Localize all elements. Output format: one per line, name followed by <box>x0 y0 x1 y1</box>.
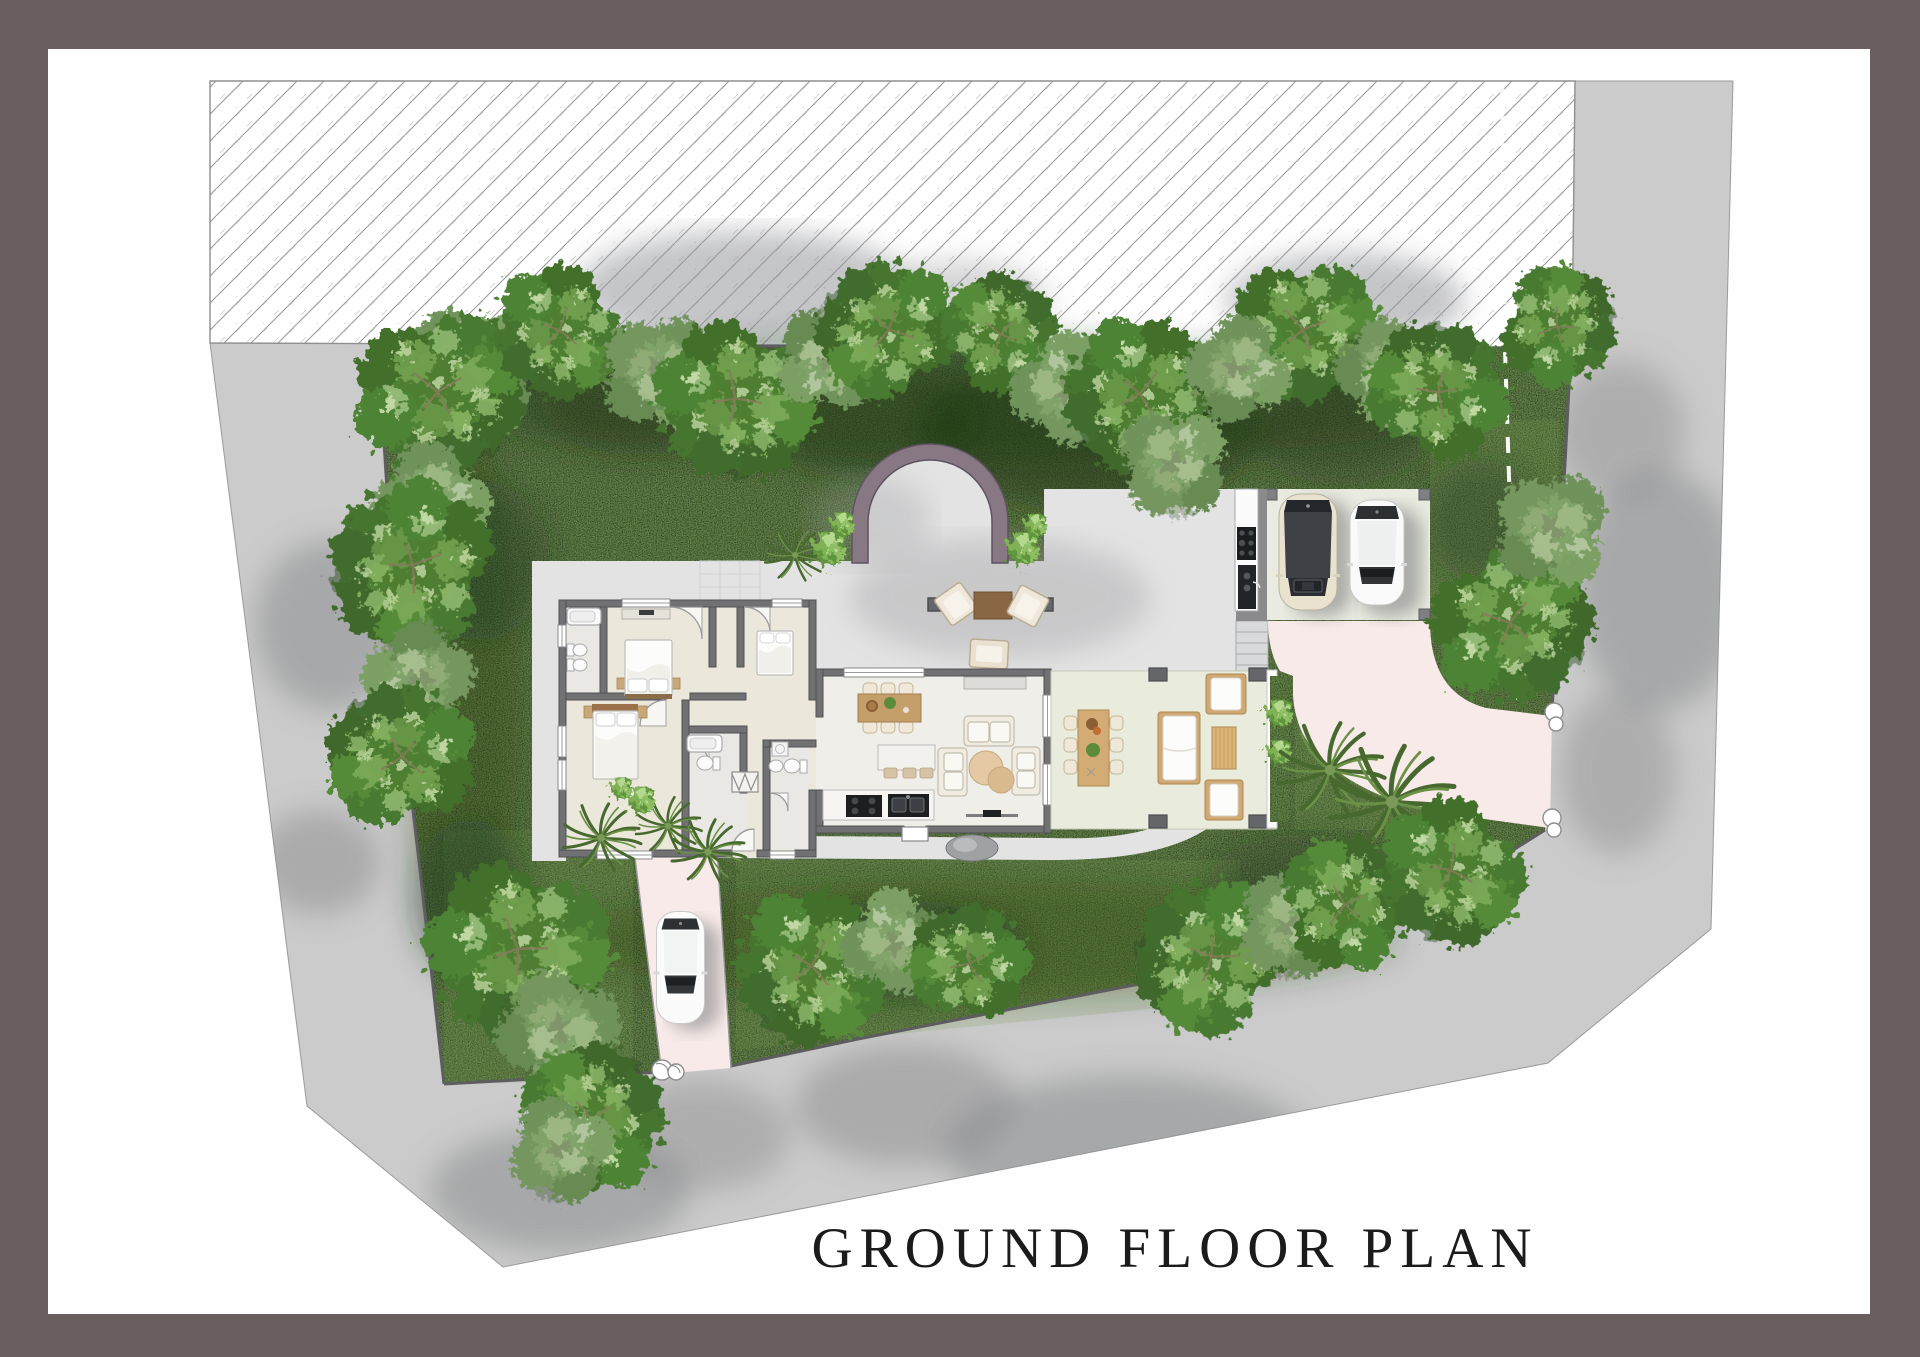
svg-text:GROUND FLOOR PLAN: GROUND FLOOR PLAN <box>811 1217 1538 1280</box>
